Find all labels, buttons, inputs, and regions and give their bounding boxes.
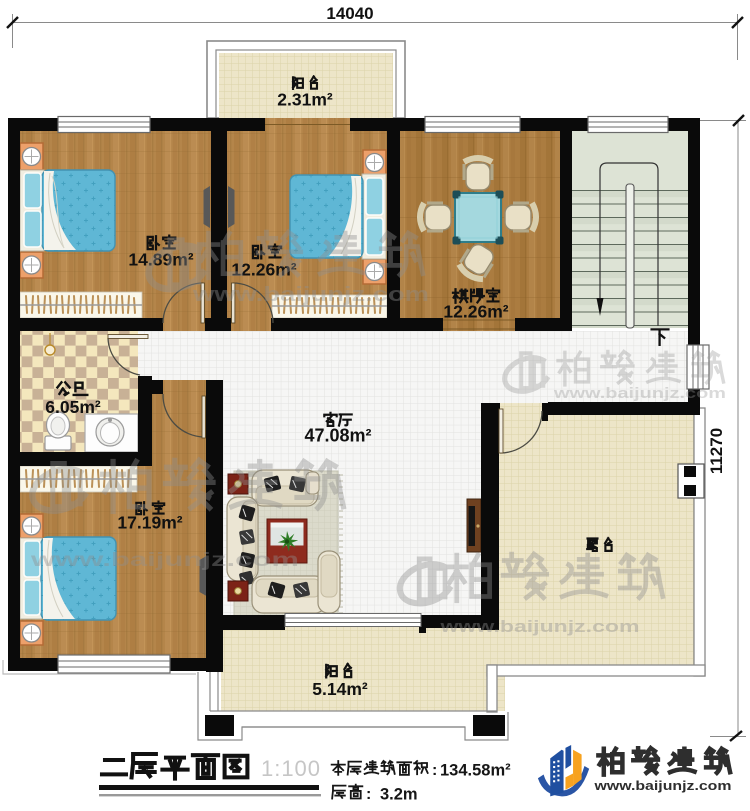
svg-text:47.08m²: 47.08m² [304,426,371,446]
svg-text:www.baijunjz.com: www.baijunjz.com [553,385,726,402]
svg-text:www.baijunjz.com: www.baijunjz.com [439,617,639,636]
svg-text:1:100: 1:100 [261,756,321,781]
svg-text:2.31m²: 2.31m² [277,90,333,110]
svg-text:5.14m²: 5.14m² [312,679,368,699]
svg-text:134.58m²: 134.58m² [440,762,511,780]
svg-text:6.05m²: 6.05m² [45,397,101,417]
svg-text:www.baijunjz.com: www.baijunjz.com [593,778,731,793]
svg-text::: : [366,786,371,803]
svg-text:www.baijunjz.com: www.baijunjz.com [29,550,299,571]
svg-text:www.baijunjz.com: www.baijunjz.com [192,284,429,306]
svg-text:12.26m²: 12.26m² [443,302,508,322]
svg-text:14040: 14040 [326,4,373,23]
svg-text:3.2m: 3.2m [380,786,418,804]
svg-text::: : [432,762,437,779]
svg-text:11270: 11270 [707,428,726,474]
svg-text:17.19m²: 17.19m² [117,513,182,533]
